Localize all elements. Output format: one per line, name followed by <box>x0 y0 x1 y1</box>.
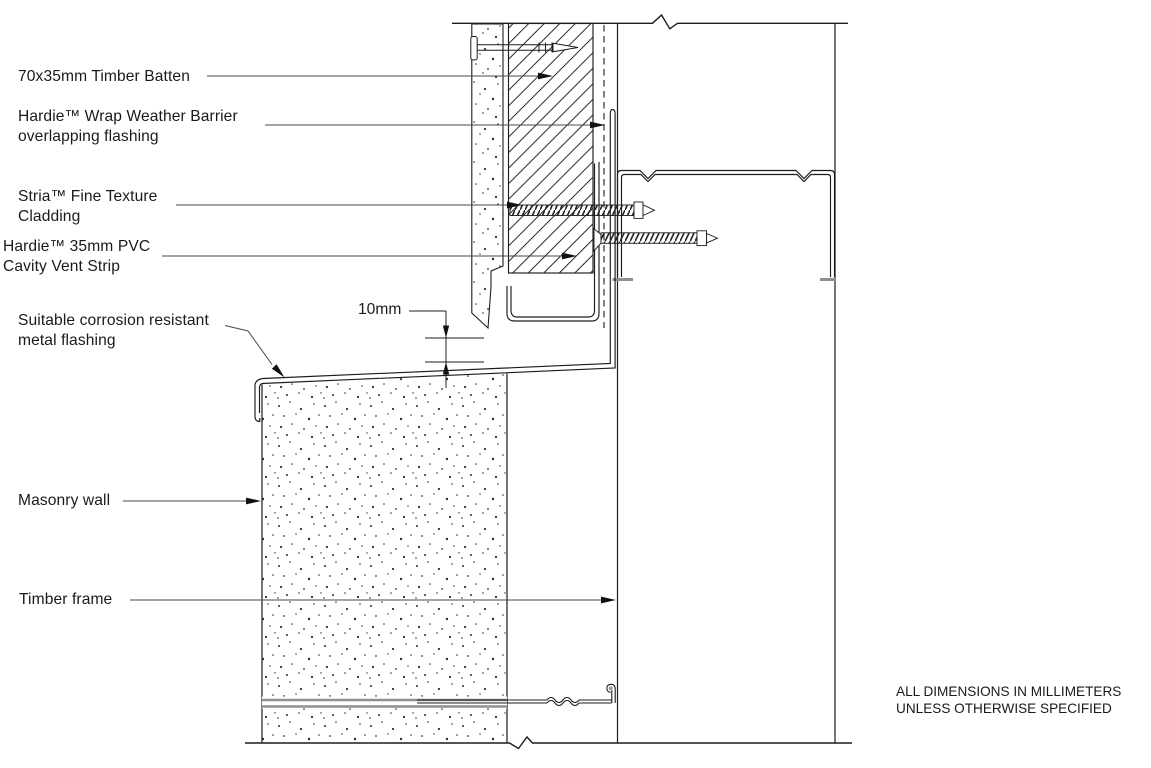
dimension-label-10mm: 10mm <box>358 301 401 319</box>
callout-stria-cladding: Stria™ Fine Texture Cladding <box>18 187 157 228</box>
screw-fixing-lower <box>594 229 718 251</box>
general-notes: ALL DIMENSIONS IN MILLIMETERS UNLESS OTH… <box>896 683 1121 717</box>
timber-batten-section <box>509 24 594 274</box>
masonry-wall-section <box>262 374 507 744</box>
callout-timber-frame: Timber frame <box>19 590 112 610</box>
callout-timber-batten: 70x35mm Timber Batten <box>18 67 190 87</box>
callout-weather-barrier: Hardie™ Wrap Weather Barrier overlapping… <box>18 107 238 148</box>
frame-bottom-plate <box>613 171 837 280</box>
callout-cavity-vent-strip: Hardie™ 35mm PVC Cavity Vent Strip <box>3 237 150 278</box>
callout-masonry-wall: Masonry wall <box>18 491 110 511</box>
construction-detail-drawing: 70x35mm Timber Batten Hardie™ Wrap Weath… <box>0 0 1151 768</box>
stria-cladding-section <box>472 24 503 328</box>
callout-metal-flashing: Suitable corrosion resistant metal flash… <box>18 311 209 352</box>
timber-frame <box>618 23 836 743</box>
